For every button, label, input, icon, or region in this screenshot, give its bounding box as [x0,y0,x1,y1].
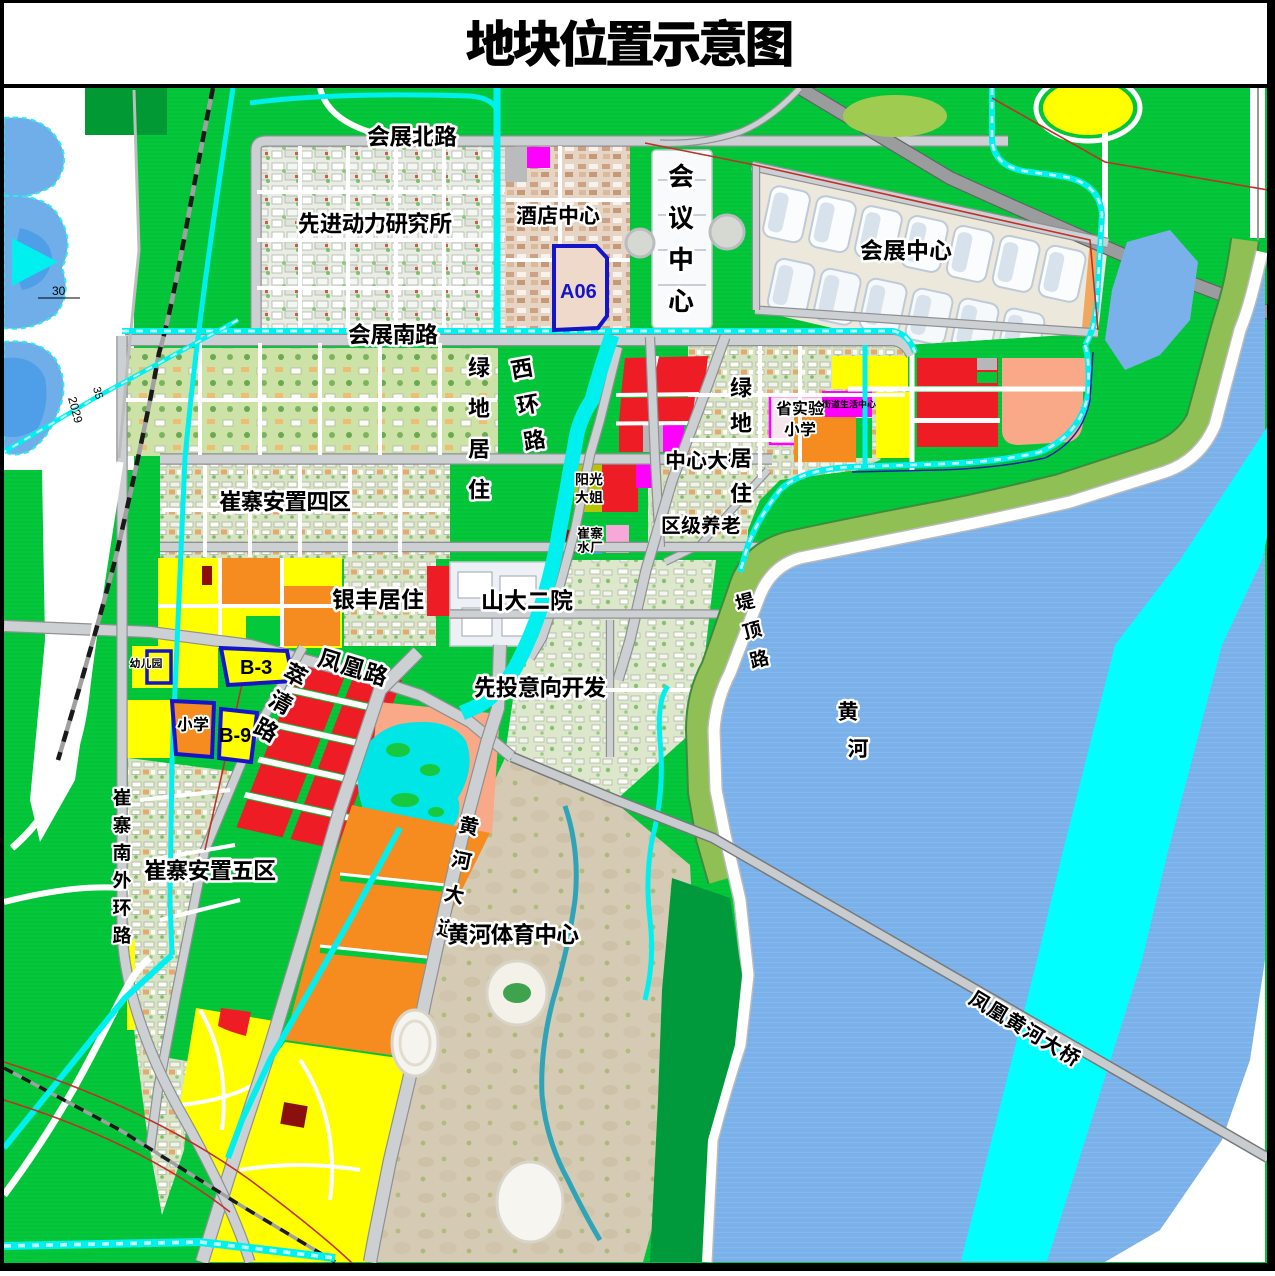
svg-text:30: 30 [52,284,66,298]
svg-text:B-9: B-9 [219,725,251,747]
svg-text:B-3: B-3 [240,657,272,679]
svg-text:A06: A06 [560,281,597,303]
